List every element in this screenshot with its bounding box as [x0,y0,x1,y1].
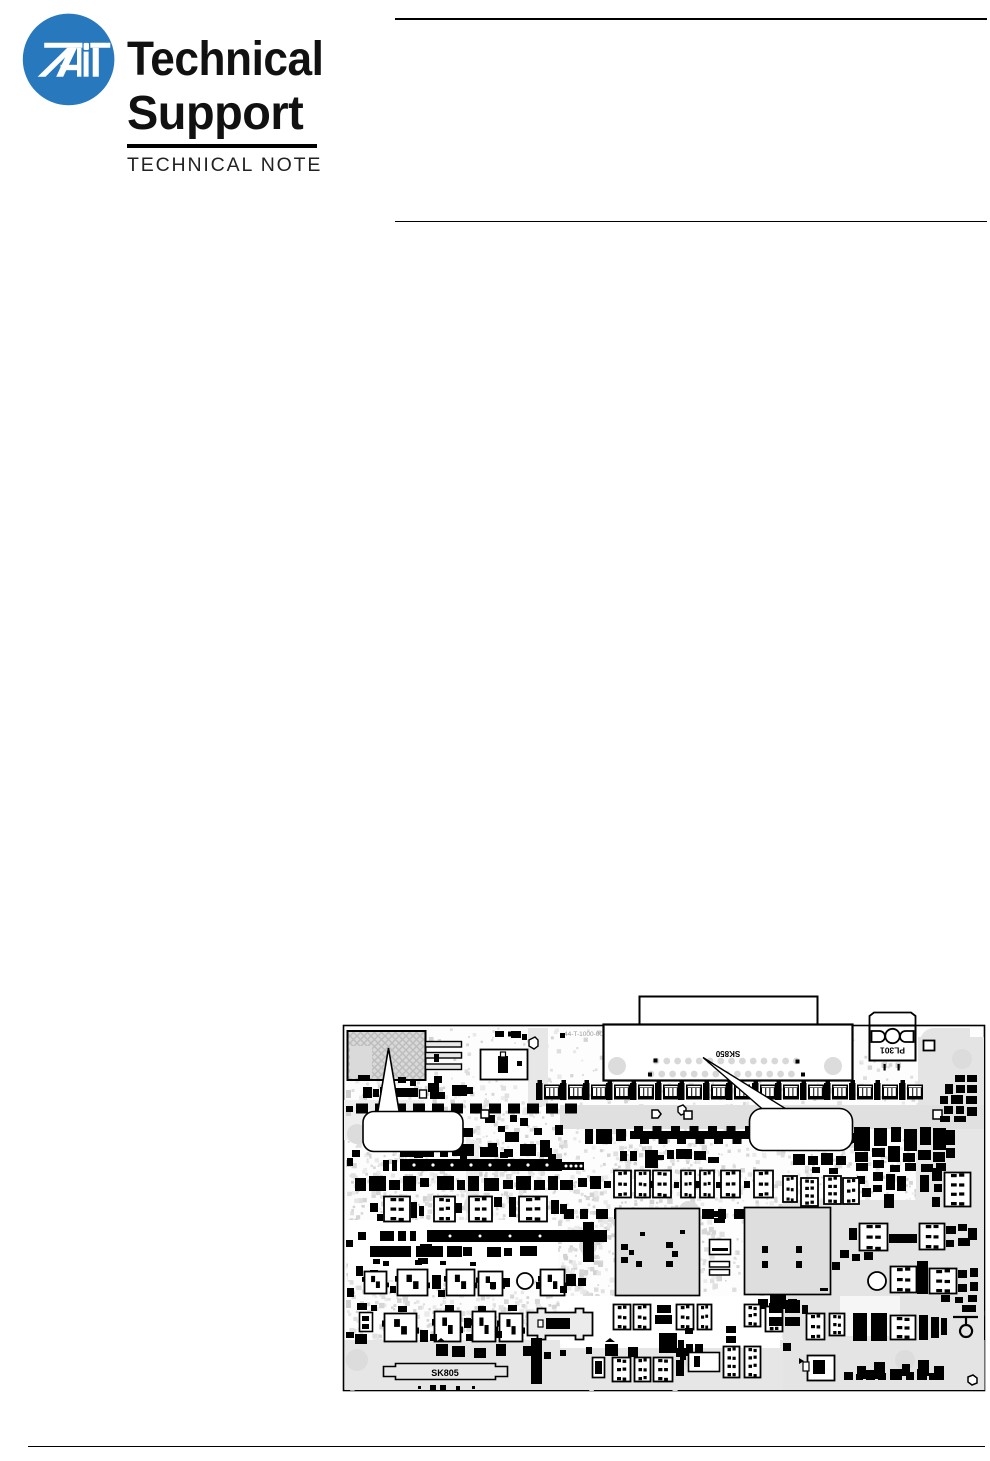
svg-text:SK850: SK850 [715,1049,740,1058]
svg-text:44-T-1000-00: 44-T-1000-00 [564,1031,603,1038]
svg-text:PL301: PL301 [880,1046,905,1056]
svg-text:SK805: SK805 [431,1368,459,1378]
